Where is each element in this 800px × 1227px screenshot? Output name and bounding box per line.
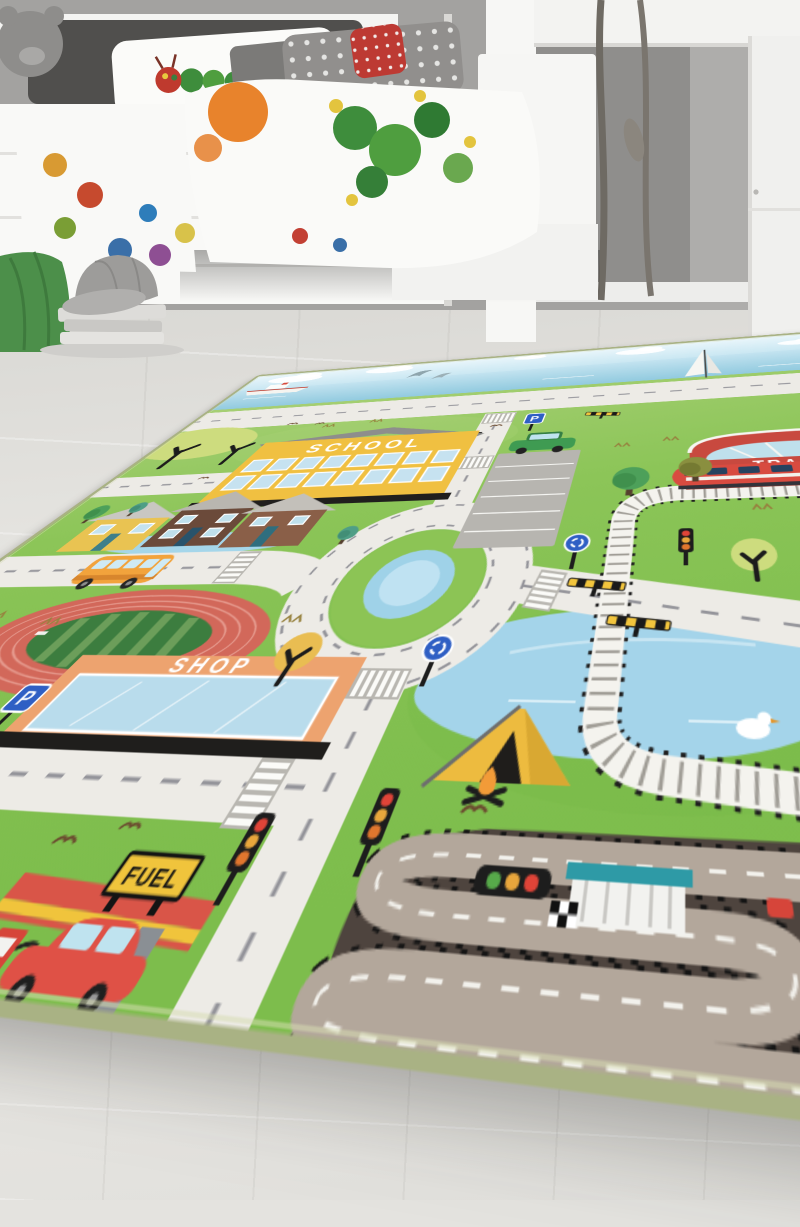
race-start-light — [471, 864, 553, 900]
book — [64, 319, 162, 333]
wardrobe — [748, 36, 800, 338]
book — [60, 332, 164, 344]
wardrobe-handle — [753, 189, 758, 194]
pit-garage — [559, 862, 693, 936]
checkered-flag — [547, 900, 578, 928]
green-knit-pouf — [0, 252, 70, 352]
shop-label: SHOP — [160, 656, 259, 680]
shop-window — [24, 674, 337, 738]
race-kart-red — [766, 897, 794, 918]
red-polka-pillow — [349, 23, 407, 80]
bedroom-background — [0, 0, 800, 380]
